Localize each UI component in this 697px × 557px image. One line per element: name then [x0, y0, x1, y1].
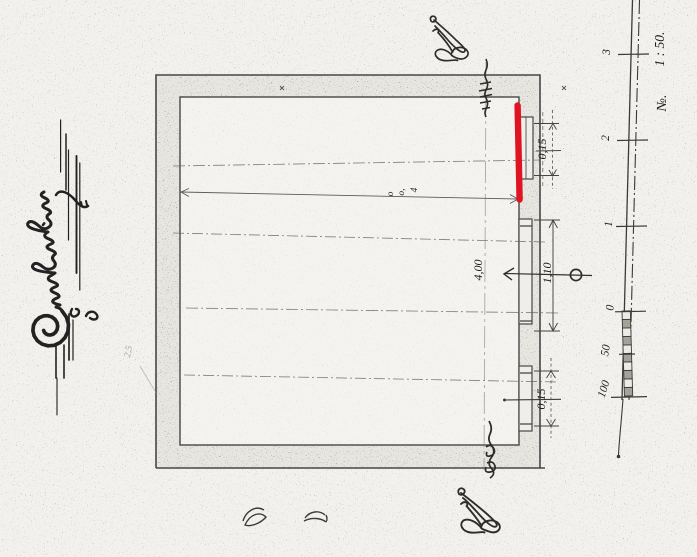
svg-text:1 : 50.: 1 : 50. [652, 32, 667, 67]
svg-text:1: 1 [603, 221, 615, 227]
svg-text:4,00: 4,00 [471, 260, 485, 281]
svg-text:1,10: 1,10 [540, 263, 554, 284]
svg-text:o,: o, [397, 188, 407, 195]
svg-text:№.: №. [655, 95, 670, 113]
svg-text:50: 50 [599, 344, 613, 358]
svg-text:0,15: 0,15 [534, 389, 548, 410]
svg-text:3: 3 [601, 49, 613, 56]
svg-text:0,15: 0,15 [535, 139, 549, 160]
svg-text:2: 2 [600, 135, 612, 141]
svg-text:4: 4 [410, 187, 420, 192]
svg-text:o: o [386, 191, 396, 196]
svg-text:2,5: 2,5 [123, 345, 135, 359]
